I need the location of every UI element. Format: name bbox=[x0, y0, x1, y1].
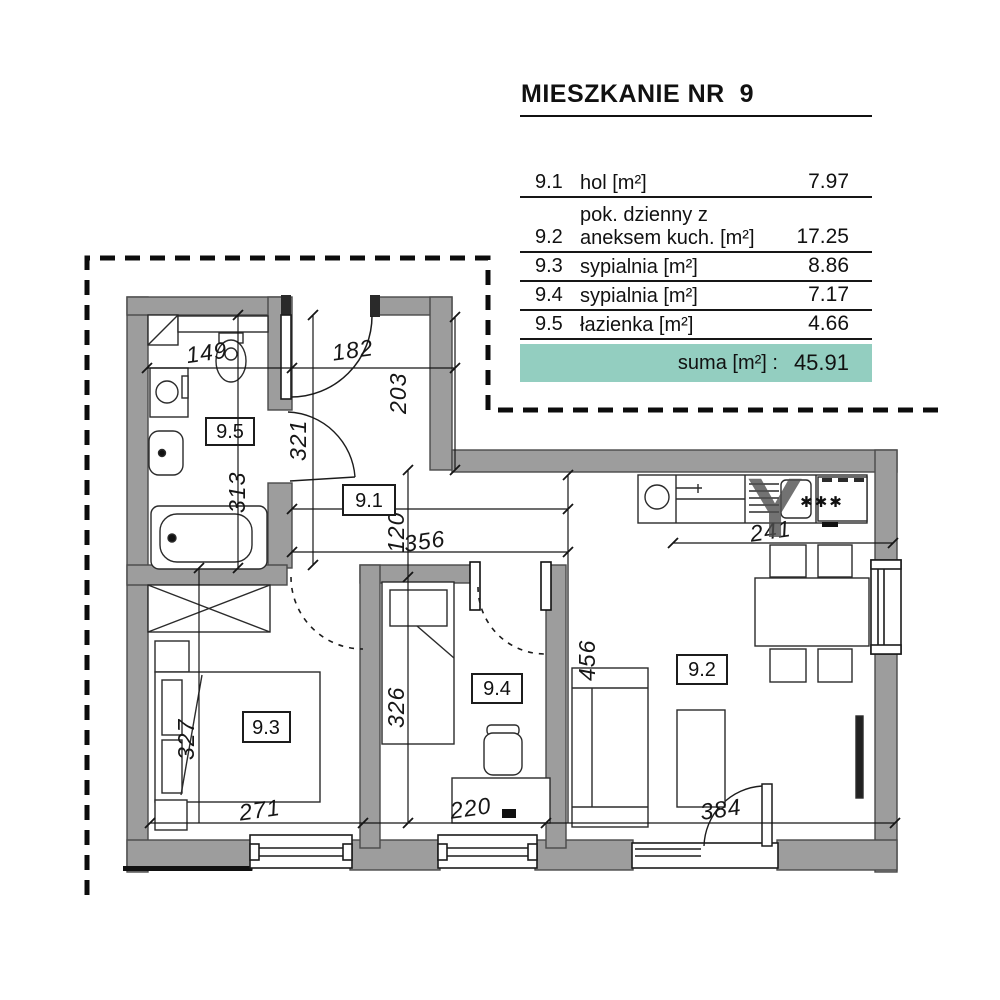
bathroom-shelf bbox=[178, 316, 268, 332]
unit-title: MIESZKANIE NR 9 bbox=[520, 80, 872, 117]
room-number: 9.2 bbox=[520, 226, 580, 249]
dim-203: 203 bbox=[385, 373, 411, 415]
coffee-table bbox=[677, 710, 725, 807]
dim-456: 456 bbox=[574, 640, 600, 681]
room-label-bedroom2: 9.4 bbox=[483, 678, 511, 700]
room-area: 7.17 bbox=[777, 283, 872, 307]
window-living-right bbox=[871, 560, 901, 654]
bathtub-drain bbox=[168, 534, 176, 542]
room-name: pok. dzienny z aneksem kuch. [m²] bbox=[580, 204, 777, 249]
sofa-icon bbox=[572, 668, 648, 827]
room-area: 17.25 bbox=[777, 225, 872, 249]
table-row-hol: 9.1 hol [m²] 7.97 bbox=[520, 163, 872, 198]
suma-label: suma [m²] : bbox=[678, 352, 778, 375]
room-name-line2: łazienka [m²] bbox=[580, 314, 777, 336]
room-label-bathroom: 9.5 bbox=[216, 421, 244, 443]
room-name-line2: hol [m²] bbox=[580, 172, 777, 194]
room-name-line1: pok. dzienny z bbox=[580, 204, 777, 226]
room-name-line2: sypialnia [m²] bbox=[580, 256, 777, 278]
table-row-bedroom1: 9.3 sypialnia [m²] 8.86 bbox=[520, 256, 872, 282]
ground-line bbox=[123, 866, 252, 871]
kitchen-sink-round bbox=[645, 485, 669, 509]
window-living-right-cap bbox=[871, 560, 901, 569]
wall-bottom-1 bbox=[127, 840, 252, 870]
table-row-bedroom2: 9.4 sypialnia [m²] 7.17 bbox=[520, 285, 872, 311]
room-name-line2: aneksem kuch. [m²] bbox=[580, 227, 777, 249]
wall-right-lower bbox=[875, 648, 897, 872]
wall-step bbox=[430, 297, 452, 470]
wall-top-bath bbox=[127, 297, 290, 315]
room-label-living: 9.2 bbox=[688, 659, 716, 681]
window-bedroom1 bbox=[250, 835, 352, 868]
room-number: 9.1 bbox=[520, 171, 580, 194]
radiator-bedroom1 bbox=[155, 800, 187, 830]
bedroom2-door-jamb-left bbox=[470, 562, 480, 610]
window-living-right-cap2 bbox=[871, 645, 901, 654]
dim-182: 182 bbox=[330, 334, 375, 366]
stove-knob bbox=[822, 522, 838, 527]
dim-321: 321 bbox=[285, 420, 311, 461]
washing-machine-drum bbox=[156, 381, 178, 403]
window-bedroom1-cap2 bbox=[343, 844, 352, 860]
wall-top-living bbox=[452, 450, 897, 472]
bedroom2-door-jamb-right bbox=[541, 562, 551, 610]
entry-door-jamb-right bbox=[370, 295, 380, 317]
bedroom2-door-swing bbox=[478, 587, 545, 654]
room-name-line2: sypialnia [m²] bbox=[580, 285, 777, 307]
suma-row: suma [m²] : 45.91 bbox=[520, 344, 872, 382]
nightstand bbox=[155, 641, 189, 672]
window-bedroom2-cap2 bbox=[528, 844, 537, 860]
room-name: hol [m²] bbox=[580, 172, 777, 194]
chair-top-2 bbox=[818, 545, 852, 577]
chair-bottom-2 bbox=[818, 649, 852, 682]
tv-icon bbox=[856, 716, 863, 798]
room-number: 9.5 bbox=[520, 313, 580, 336]
window-bedroom1-cap bbox=[250, 844, 259, 860]
furniture-living bbox=[572, 475, 869, 827]
balcony-door-leaf bbox=[762, 784, 772, 846]
room-label-hol: 9.1 bbox=[355, 490, 383, 512]
dim-marker-square bbox=[502, 809, 516, 818]
room-area: 4.66 bbox=[777, 312, 872, 336]
floorplan-page: ✱✱✱ 149 182 356 313 321 203 120 326 327 … bbox=[0, 0, 1000, 1000]
dining-table-icon bbox=[755, 578, 869, 646]
furniture-bedroom1 bbox=[148, 585, 320, 830]
table-row-bathroom: 9.5 łazienka [m²] 4.66 bbox=[520, 314, 872, 340]
washing-machine-panel bbox=[182, 376, 188, 398]
suma-value: 45.91 bbox=[794, 350, 849, 376]
bathroom-door-leaf bbox=[290, 477, 355, 481]
desk-chair-icon bbox=[484, 733, 522, 775]
bedroom1-door-swing bbox=[291, 577, 363, 649]
room-number: 9.4 bbox=[520, 284, 580, 307]
room-label-bedroom1: 9.3 bbox=[252, 717, 280, 739]
dim-326: 326 bbox=[383, 687, 409, 728]
room-name: sypialnia [m²] bbox=[580, 256, 777, 278]
wall-bottom-4 bbox=[777, 840, 897, 870]
entry-door-leaf bbox=[281, 315, 291, 399]
dim-271: 271 bbox=[236, 794, 282, 826]
entry-door-jamb-left bbox=[281, 295, 291, 317]
window-bedroom2 bbox=[438, 835, 537, 868]
window-bedroom2-cap bbox=[438, 844, 447, 860]
dim-313: 313 bbox=[224, 472, 250, 513]
room-area: 7.97 bbox=[777, 170, 872, 194]
room-area: 8.86 bbox=[777, 254, 872, 278]
chair-bottom-1 bbox=[770, 649, 806, 682]
wall-right-upper bbox=[875, 450, 897, 568]
stove-burners-icon: ✱✱✱ bbox=[800, 493, 844, 511]
area-table: MIESZKANIE NR 9 9.1 hol [m²] 7.97 9.2 po… bbox=[520, 80, 872, 390]
watermark-letter: Y bbox=[747, 461, 803, 555]
washbasin-drain bbox=[159, 450, 166, 457]
table-row-living: 9.2 pok. dzienny z aneksem kuch. [m²] 17… bbox=[520, 205, 872, 253]
wall-bedroom1-bedroom2 bbox=[360, 565, 380, 848]
room-name: sypialnia [m²] bbox=[580, 285, 777, 307]
room-name: łazienka [m²] bbox=[580, 314, 777, 336]
dim-327: 327 bbox=[173, 718, 199, 760]
dim-120: 120 bbox=[383, 512, 409, 553]
dim-384: 384 bbox=[698, 793, 743, 825]
single-bed-pillow bbox=[390, 590, 447, 626]
room-number: 9.3 bbox=[520, 255, 580, 278]
